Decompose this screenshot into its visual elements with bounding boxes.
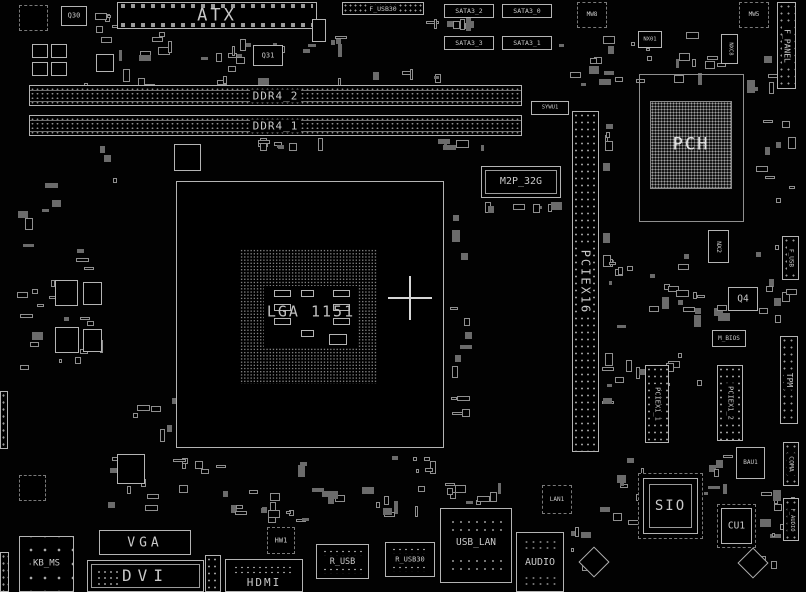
pcb-part [617,475,626,483]
pcb-part [678,353,682,358]
crosshair-vertical [409,276,411,320]
q4-label: Q4 [737,294,748,304]
pcb-part [692,59,696,67]
nx01-chip: NX01 [638,31,662,48]
r-usb-pins-top [322,549,363,556]
pcb-part [167,425,172,432]
q30-label: Q30 [68,13,81,20]
pcb-part [772,533,775,537]
pcb-part [384,496,389,505]
pcb-part [606,124,613,129]
pciex1-1-label: PCIEX1_1 [653,384,662,424]
qfn-chip [19,475,46,501]
edge-connector [0,552,9,592]
pcb-part [786,289,797,295]
inductor [174,144,201,171]
sio-chip: SIO [638,473,703,539]
pcb-part [649,306,659,312]
nxc8-label: NXC8 [727,42,733,55]
hdmi-pins [233,565,295,574]
pcb-part [676,290,689,297]
pcb-part [425,468,433,472]
pcb-part [418,486,425,492]
pcb-part [774,504,782,511]
ddr4-1-slot: DDR4_1 [29,115,522,136]
lga1151-label: LGA 1151 [267,305,355,320]
pcb-part [179,485,188,493]
pcb-part [137,405,150,411]
pcb-part [460,19,465,30]
tpm-label: TPM [784,370,794,390]
pciex1-2-label: PCIEX1_2 [726,383,735,423]
socket-pad [333,290,350,297]
pcb-part [704,492,708,495]
pcb-part [201,469,209,474]
sata3-2-label: SATA3_2 [455,8,482,15]
pcb-part [782,121,790,128]
pcb-part [589,66,599,74]
usb-lan-pins-top [449,518,505,534]
pcb-part [201,57,208,60]
r-usb-connector: R_USB [316,544,369,579]
pcb-part [686,32,699,39]
pcb-part [581,532,591,538]
pcb-part [145,505,158,511]
mw5-chip: MW5 [739,2,769,28]
f-panel-header: F_PANEL [777,2,796,89]
pcb-part [100,146,105,153]
pcb-part [716,460,723,468]
pcb-part [617,325,626,328]
inductor [96,54,114,72]
ddr4-2-slot: DDR4_2 [29,85,522,106]
pcb-part [392,456,398,460]
pcb-part [776,198,781,203]
inductor [117,454,145,484]
ddr4-2-label: DDR4_2 [250,89,302,102]
pcb-part [788,137,796,149]
hdmi-connector: HDMI [225,559,303,592]
pcb-part [599,79,611,85]
f-usb-header: F_USB [782,236,799,280]
audio-pins-bottom [523,575,559,587]
pcb-part [461,253,468,260]
pcb-part [424,457,430,461]
pcb-part [23,244,34,247]
pcb-part [683,307,695,312]
crystal [578,546,609,577]
tpm-header: TPM [780,336,798,424]
pcb-part [101,37,112,43]
pcb-part [383,508,392,515]
pcb-part [605,141,613,151]
pcb-part [662,297,669,309]
pcb-part [759,308,768,314]
pcb-part [678,264,689,270]
pcb-part [52,200,61,207]
socket-pad [329,334,347,345]
f-panel-label: F_PANEL [782,26,792,66]
pcb-part [559,44,564,47]
sata3-0-connector: SATA3_0 [502,4,552,18]
pcb-part [302,518,309,521]
pcb-part [362,487,374,494]
pch-label: PCH [673,137,710,154]
socket-pad [301,290,314,297]
pcb-part [75,357,81,364]
pcb-part [756,252,761,257]
pcb-part [113,178,117,183]
pciex16-slot: PCIEX16 [572,111,599,452]
m-bios-chip: M_BIOS [712,330,746,347]
mosfet [83,282,102,305]
pcb-part [95,13,107,20]
pcb-part [600,507,610,512]
pcb-part [723,455,733,458]
pcb-part [104,155,111,162]
pcb-part [42,209,49,212]
dvi-label: DVI [122,568,169,584]
pcb-part [415,506,418,517]
pcb-part [270,493,280,501]
pcb-part [318,138,323,151]
vga-label: VGA [127,536,162,549]
pcb-part [609,281,612,285]
pcb-part [151,406,161,412]
pcb-part [277,145,284,148]
pcb-part [139,55,151,61]
f-usb-label: F_USB [787,246,795,270]
coma-label: COMA [787,453,796,475]
pcb-part [705,61,715,69]
pcb-part [490,492,497,502]
bau1-chip: BAU1 [736,447,765,479]
pcb-part [789,186,795,189]
usb-lan-label: USB_LAN [453,537,499,549]
f-audio-label: F_AUDIO [787,505,795,534]
hw1-chip: HW1 [267,527,295,554]
lan1-chip: LAN1 [542,485,572,514]
pcb-part [453,21,460,29]
pcb-part [764,56,772,63]
pcb-part [765,147,770,155]
pcb-part [693,292,697,299]
pcb-part [59,359,62,363]
pcb-part [626,360,632,372]
pcb-part [232,46,235,56]
inductor [55,327,79,353]
f-usb30-label: F_USB30 [366,4,399,13]
pcb-part [607,384,612,387]
motherboard-layout-diagram: Q30 ATX F_USB30 SATA3_2 SATA3_0 SATA3_3 … [0,0,806,592]
f-audio-header: F_AUDIO [783,498,799,541]
pcb-part [223,76,227,84]
q4-chip: Q4 [728,287,758,311]
pcb-part [708,486,720,489]
pcb-part [590,58,597,64]
mosfet [83,329,102,352]
pcb-part [335,36,347,39]
pcb-part [451,397,457,400]
pcb-part [416,469,419,473]
pcb-part [761,492,772,496]
pcb-part [123,69,130,82]
m2-label: M2P_32G [500,177,542,187]
usb-lan-pins-bottom [449,557,505,573]
pcb-part [775,315,781,323]
pcb-part [714,469,719,477]
r-usb30-connector: R_USB30 [385,542,435,577]
nxc8-chip: NXC8 [721,34,738,64]
bau1-label: BAU1 [743,460,757,466]
pcb-part [236,505,243,509]
pcb-part [452,230,460,242]
pcb-part [695,308,701,314]
pcb-part [289,143,297,151]
pcb-part [25,218,33,230]
sywu1-component: SYWU1 [531,101,569,115]
dvi-connector: DVI [87,560,204,592]
mw8-chip: MW8 [577,2,607,28]
pcb-part [756,166,768,172]
pcb-part [679,53,690,61]
pcb-part [646,48,650,51]
pcb-part [450,307,458,310]
pcb-part [286,511,291,514]
pcb-part [228,66,236,72]
mosfet [51,44,67,58]
pcb-part [763,120,773,123]
pcb-part [465,332,472,339]
pcb-part [477,496,490,502]
pcb-part [173,459,186,462]
pcb-part [603,398,612,404]
sata3-0-label: SATA3_0 [513,8,540,15]
pcb-part [676,59,679,68]
pcb-part [236,57,245,64]
pcb-part [460,345,472,349]
atx-label: ATX [197,7,237,24]
pcb-part [331,40,335,45]
mosfet [32,44,48,58]
pcb-part [697,295,705,298]
pcb-part [603,233,610,243]
atx-side-header [312,19,326,42]
pcb-part [773,490,781,501]
pcb-part [127,486,131,494]
pcb-part [747,80,755,93]
hw1-label: HW1 [275,537,288,544]
pcb-part [760,519,771,527]
mosfet [32,62,48,76]
pcb-part [235,511,247,515]
pcb-part [147,494,159,499]
sata3-3-connector: SATA3_3 [444,36,494,50]
pcb-part [575,527,579,537]
pcb-part [298,465,305,477]
pcb-part [168,41,172,53]
pcb-part [261,508,266,513]
pcb-part [533,204,540,213]
inductor [55,280,78,306]
dvi-pin-grid [96,569,122,587]
pcb-part [462,409,470,417]
qfn-chip [19,5,48,31]
pcb-part [455,485,466,493]
sio-label: SIO [655,499,686,513]
q30-chip: Q30 [61,6,87,26]
q31-chip: Q31 [253,45,283,66]
pcb-part [195,461,203,469]
pcb-part [453,215,459,221]
pcb-part [434,76,439,79]
pcb-part [615,377,624,383]
r-usb-pins-bottom [322,567,363,574]
pcb-part [434,19,437,29]
pcb-part [775,245,779,250]
pcb-part [87,321,94,326]
pcb-part [303,49,310,53]
pcb-part [240,39,246,51]
pcb-part [64,317,69,321]
pcb-part [76,258,89,262]
pcb-part [604,71,614,75]
cpu-socket-name: LGA 1151 [256,304,366,320]
pcb-part [464,318,470,326]
sata3-2-connector: SATA3_2 [444,4,494,18]
mosfet [51,62,67,76]
kb-ms-connector: KB_MS [19,536,74,592]
pcb-part [258,140,270,144]
cu1-label: CU1 [728,521,745,531]
pcb-part [133,413,138,418]
usb-lan-connector: USB_LAN [440,508,512,583]
pcb-part [647,56,652,61]
pcb-part [603,255,611,267]
pcb-part [627,266,633,271]
pcb-part [20,365,29,370]
pcb-part [570,72,581,78]
m2-connector: M2P_32G [481,166,561,198]
pcb-part [223,491,228,497]
pcb-part [694,315,701,327]
edge-connector [0,391,8,449]
pcb-part [618,267,623,275]
r-usb30-label: R_USB30 [392,555,428,564]
pcb-part [308,44,316,47]
pcb-part [613,513,622,521]
pcb-part [452,366,458,378]
pcb-part [765,176,775,179]
vga-connector: VGA [99,530,191,555]
lan1-label: LAN1 [550,497,564,503]
pcb-part [30,342,39,347]
pcb-part [18,211,28,218]
pcb-part [216,465,226,468]
atx-power-connector: ATX [117,2,317,29]
pcb-part [32,289,38,294]
hdmi-label: HDMI [247,577,282,588]
pcb-part [466,501,473,504]
sywu1-label: SYWU1 [542,105,559,111]
pcb-part [322,491,331,497]
kb-ms-label: KB_MS [30,559,63,570]
pin-header [205,555,221,592]
audio-pins-top [523,539,559,551]
pcb-part [606,132,610,138]
pcb-part [119,50,122,61]
pcb-part [328,497,334,504]
pcb-part [96,26,103,33]
pcb-part [488,206,494,213]
pcb-part [776,142,781,148]
pcb-part [717,305,727,311]
pcb-part [268,510,280,518]
pcb-part [80,317,90,320]
pcb-part [107,15,111,18]
nx2-chip: NX2 [708,230,729,263]
pcb-part [609,262,616,265]
pcb-part [678,300,683,305]
socket-pad [274,290,291,297]
pcb-part [258,78,269,85]
pcb-part [376,502,380,508]
pcb-part [455,355,461,362]
audio-label: AUDIO [522,557,558,569]
pcb-part [466,18,471,31]
sata3-1-label: SATA3_1 [513,40,540,47]
r-usb30-pins-top [391,547,429,554]
nx01-label: NX01 [643,37,656,43]
mw8-label: MW8 [587,12,598,18]
pcb-part [77,249,84,253]
pcb-part [481,145,484,151]
pcb-part [338,44,342,57]
pcb-part [426,21,439,24]
pcb-part [766,286,773,292]
pcb-part [452,412,463,415]
pcb-part [152,37,163,42]
mw5-label: MW5 [749,12,760,18]
socket-pad [301,330,314,337]
pcb-part [498,483,501,494]
pciex1-1-slot: PCIEX1_1 [645,365,669,443]
pch-chip: PCH [650,101,732,189]
pcb-part [444,140,447,147]
r-usb-label: R_USB [327,556,359,567]
pciex1-2-slot: PCIEX1_2 [717,365,743,441]
pcb-part [447,488,453,495]
pcb-part [774,298,781,306]
cu1-chip: CU1 [721,508,752,544]
pcb-part [32,332,43,340]
pcb-part [456,140,469,148]
pcb-part [45,183,58,188]
pcb-part [413,457,417,461]
pcb-part [602,367,614,371]
pcb-part [707,56,718,60]
sata3-3-label: SATA3_3 [455,40,482,47]
pcb-part [723,484,727,494]
ddr4-1-label: DDR4_1 [250,119,302,132]
m-bios-label: M_BIOS [718,336,740,342]
pcb-part [410,69,413,80]
pcb-part [373,72,379,80]
pcb-part [631,42,635,46]
pcb-part [627,458,634,463]
pcb-part [771,561,777,569]
nx2-label: NX2 [715,241,722,253]
